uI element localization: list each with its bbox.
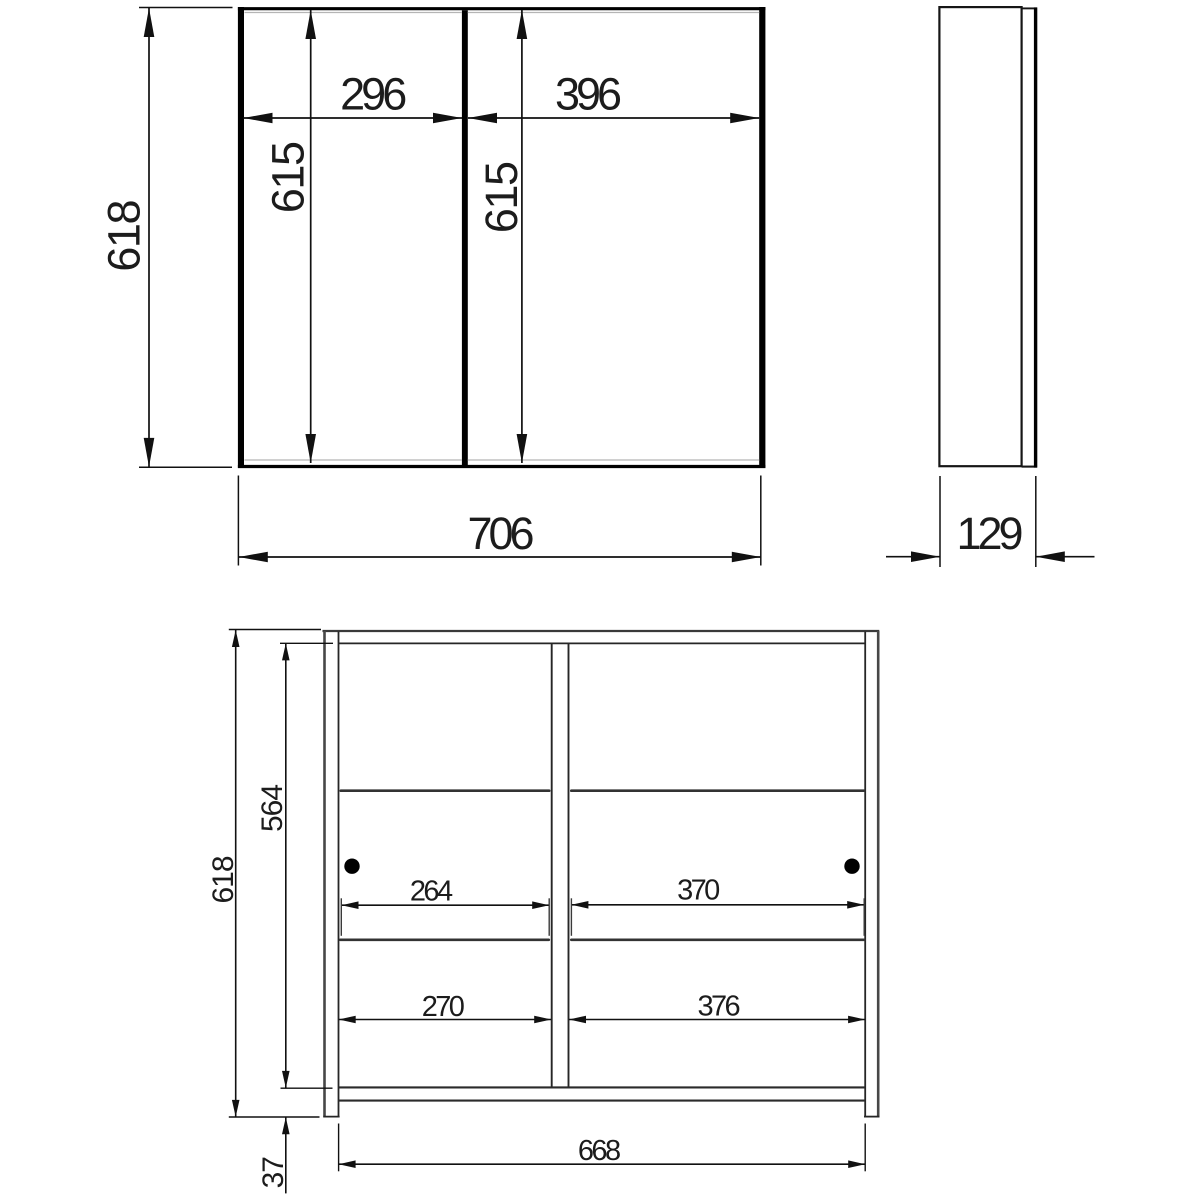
svg-text:564: 564 [256,785,289,832]
svg-text:296: 296 [340,69,406,120]
svg-text:37: 37 [257,1157,290,1189]
svg-text:264: 264 [410,875,453,907]
svg-text:129: 129 [956,508,1021,559]
svg-text:668: 668 [578,1135,620,1167]
svg-text:618: 618 [99,201,150,272]
svg-text:706: 706 [467,508,533,559]
svg-text:270: 270 [422,991,464,1023]
svg-text:615: 615 [476,162,527,233]
svg-text:615: 615 [263,142,314,213]
svg-text:618: 618 [207,856,240,903]
svg-text:396: 396 [555,69,621,120]
svg-text:376: 376 [698,991,740,1023]
svg-text:370: 370 [677,875,719,907]
